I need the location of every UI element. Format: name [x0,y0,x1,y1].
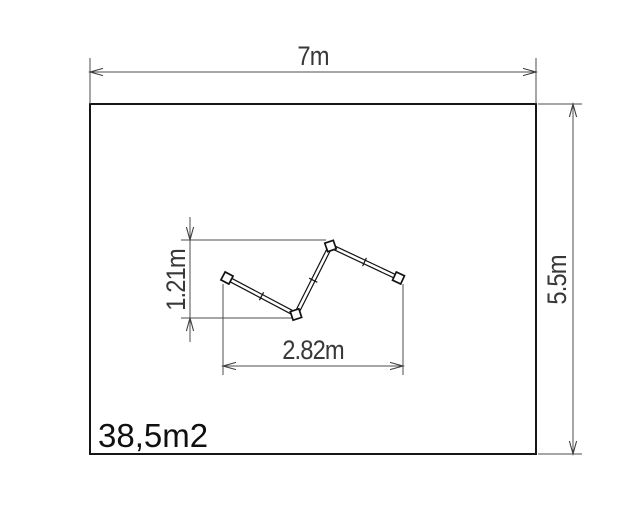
joint-node-2 [290,309,301,320]
joint-node-3 [325,240,336,251]
dimension-site-width: 7m [90,42,536,104]
area-label: 38,5m2 [98,417,208,454]
technical-drawing: 7m 5.5m 1.21m 2.82m [0,0,630,531]
equipment-height-label: 1.21m [162,249,192,311]
zigzag-equipment [221,240,405,320]
dimension-equipment-height: 1.21m [162,217,326,342]
dimension-equipment-width: 2.82m [223,284,403,375]
joint-square [290,309,301,320]
site-width-label: 7m [297,42,328,72]
equipment-width-label: 2.82m [282,336,344,366]
joint-square [325,240,336,251]
site-height-label: 5.5m [543,255,573,304]
dimension-site-height: 5.5m [538,104,582,454]
floor-plan-canvas: 7m 5.5m 1.21m 2.82m [0,0,630,531]
